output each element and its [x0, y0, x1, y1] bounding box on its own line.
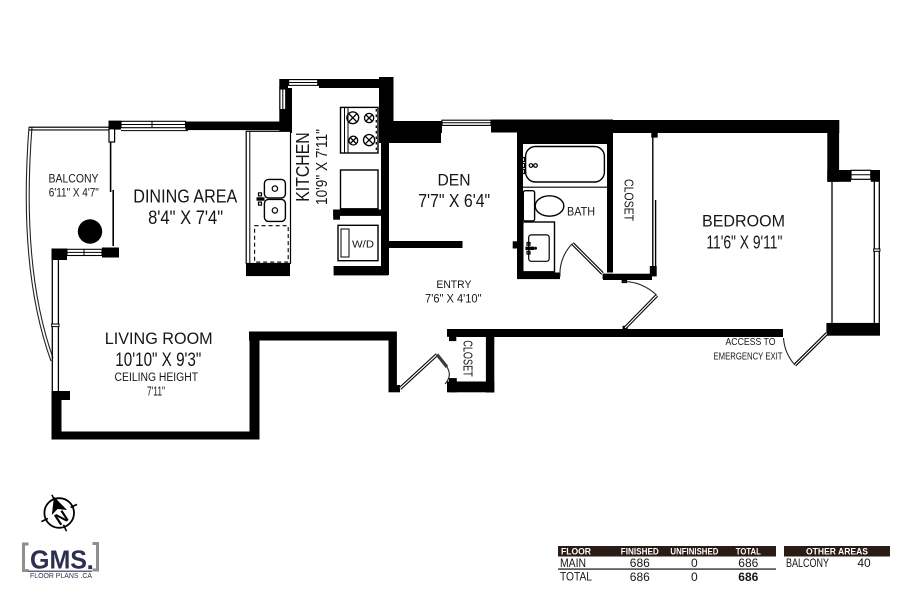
- svg-text:8'4" X 7'4": 8'4" X 7'4": [148, 208, 223, 229]
- svg-text:0: 0: [691, 570, 698, 584]
- svg-text:ACCESS TO: ACCESS TO: [726, 337, 776, 348]
- svg-text:7'6" X 4'10": 7'6" X 4'10": [425, 293, 482, 305]
- svg-text:686: 686: [738, 556, 758, 570]
- svg-text:DEN: DEN: [438, 171, 471, 190]
- svg-text:686: 686: [630, 570, 650, 584]
- svg-text:DINING AREA: DINING AREA: [133, 187, 237, 207]
- svg-text:10'10" X 9'3": 10'10" X 9'3": [115, 350, 201, 371]
- svg-text:7'11": 7'11": [147, 385, 165, 399]
- svg-text:686: 686: [630, 556, 650, 570]
- svg-text:CEILING HEIGHT: CEILING HEIGHT: [115, 370, 199, 384]
- svg-text:CLOSET: CLOSET: [622, 179, 637, 221]
- svg-text:MAIN: MAIN: [560, 556, 586, 570]
- svg-text:EMERGENCY EXIT: EMERGENCY EXIT: [714, 352, 783, 363]
- svg-text:W/D: W/D: [352, 239, 374, 251]
- svg-text:BATH: BATH: [567, 206, 595, 219]
- svg-text:FLOOR PLANS .CA: FLOOR PLANS .CA: [30, 571, 93, 580]
- svg-text:0: 0: [691, 556, 698, 570]
- svg-text:7'7" X 6'4": 7'7" X 6'4": [418, 190, 490, 211]
- svg-text:40: 40: [857, 556, 871, 570]
- svg-text:CLOSET: CLOSET: [461, 340, 476, 377]
- svg-text:KITCHEN: KITCHEN: [293, 132, 313, 202]
- svg-text:BALCONY: BALCONY: [49, 173, 99, 186]
- svg-text:6'11" X 4'7": 6'11" X 4'7": [49, 188, 99, 200]
- svg-text:TOTAL: TOTAL: [560, 569, 592, 583]
- svg-text:11'6" X 9'11": 11'6" X 9'11": [706, 232, 782, 253]
- svg-text:BALCONY: BALCONY: [786, 556, 829, 570]
- svg-text:GMS: GMS: [30, 545, 87, 575]
- svg-text:10'9" X 7'11": 10'9" X 7'11": [314, 129, 331, 205]
- svg-text:ENTRY: ENTRY: [436, 279, 471, 291]
- svg-text:686: 686: [738, 570, 758, 584]
- svg-text:LIVING ROOM: LIVING ROOM: [105, 329, 213, 348]
- svg-text:BEDROOM: BEDROOM: [702, 212, 785, 231]
